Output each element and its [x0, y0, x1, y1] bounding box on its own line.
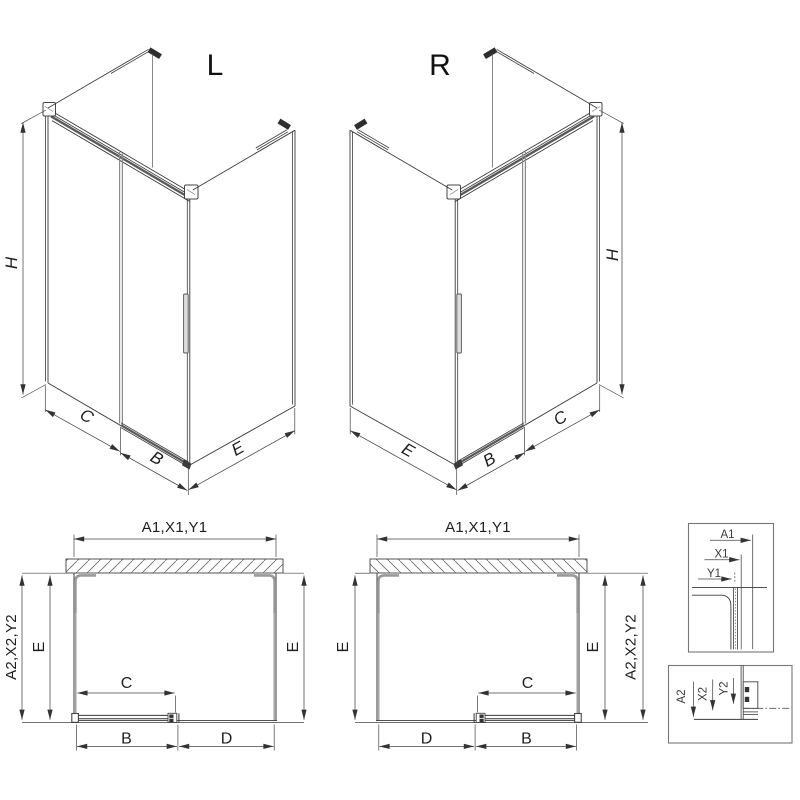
drawing-canvas: L H C B E R H C B E A1,X1,Y1 A2,X2,Y2 E … [0, 0, 800, 800]
plan-right-dim-d-label: D [421, 731, 433, 748]
iso-left-dim-b-label: B [147, 447, 166, 469]
plan-left-dim-e-left-label: E [31, 642, 48, 653]
plan-left-dim-b-label: B [121, 731, 132, 748]
detail-top-profile: A1 X1 Y1 [689, 524, 774, 653]
iso-left-title: L [207, 49, 224, 82]
detail-top-dim-a1-label: A1 [720, 529, 734, 541]
detail-bottom-dim-x2-label: X2 [698, 687, 710, 701]
iso-right-title: R [429, 49, 451, 82]
detail-bottom-dim-y2-label: Y2 [719, 681, 731, 695]
plan-left-dim-a2x2y2-label: A2,X2,Y2 [3, 614, 20, 680]
plan-left-dim-e-right-label: E [285, 642, 302, 653]
plan-right-dim-e-right-label: E [585, 642, 602, 653]
plan-right-dim-c-label: C [522, 675, 534, 692]
plan-left-dim-a1x1y1-label: A1,X1,Y1 [142, 519, 208, 536]
iso-left-dim-e-label: E [228, 437, 248, 459]
plan-left-dim-d-label: D [221, 731, 233, 748]
iso-left-dim-c-label: C [77, 405, 98, 428]
iso-view-left: L H C B E [2, 49, 295, 495]
plan-view-left: A1,X1,Y1 A2,X2,Y2 E E C B D [3, 519, 304, 751]
plan-right-dim-b-label: B [521, 731, 532, 748]
plan-left-dim-c-label: C [121, 675, 133, 692]
detail-top-dim-x1-label: X1 [714, 549, 728, 561]
shower-enclosure-technical-drawing: L H C B E R H C B E A1,X1,Y1 A2,X2,Y2 E … [0, 0, 800, 800]
detail-bottom-dim-a2-label: A2 [676, 689, 688, 703]
iso-right-dim-e-label: E [399, 439, 419, 461]
iso-right-dim-c-label: C [550, 407, 571, 430]
detail-bottom-rail: A2 X2 Y2 [669, 666, 793, 744]
plan-right-dim-e-left-label: E [335, 642, 352, 653]
iso-right-dim-h-label: H [603, 248, 622, 261]
plan-view-right: A1,X1,Y1 A2,X2,Y2 E E C D B [335, 519, 648, 751]
iso-view-right: R H C B E [350, 49, 624, 495]
plan-right-dim-a2x2y2-label: A2,X2,Y2 [623, 614, 640, 680]
iso-left-dim-h-label: H [2, 256, 21, 269]
detail-top-dim-y1-label: Y1 [707, 568, 721, 580]
iso-right-dim-b-label: B [480, 449, 499, 471]
plan-right-dim-a1x1y1-label: A1,X1,Y1 [445, 519, 511, 536]
